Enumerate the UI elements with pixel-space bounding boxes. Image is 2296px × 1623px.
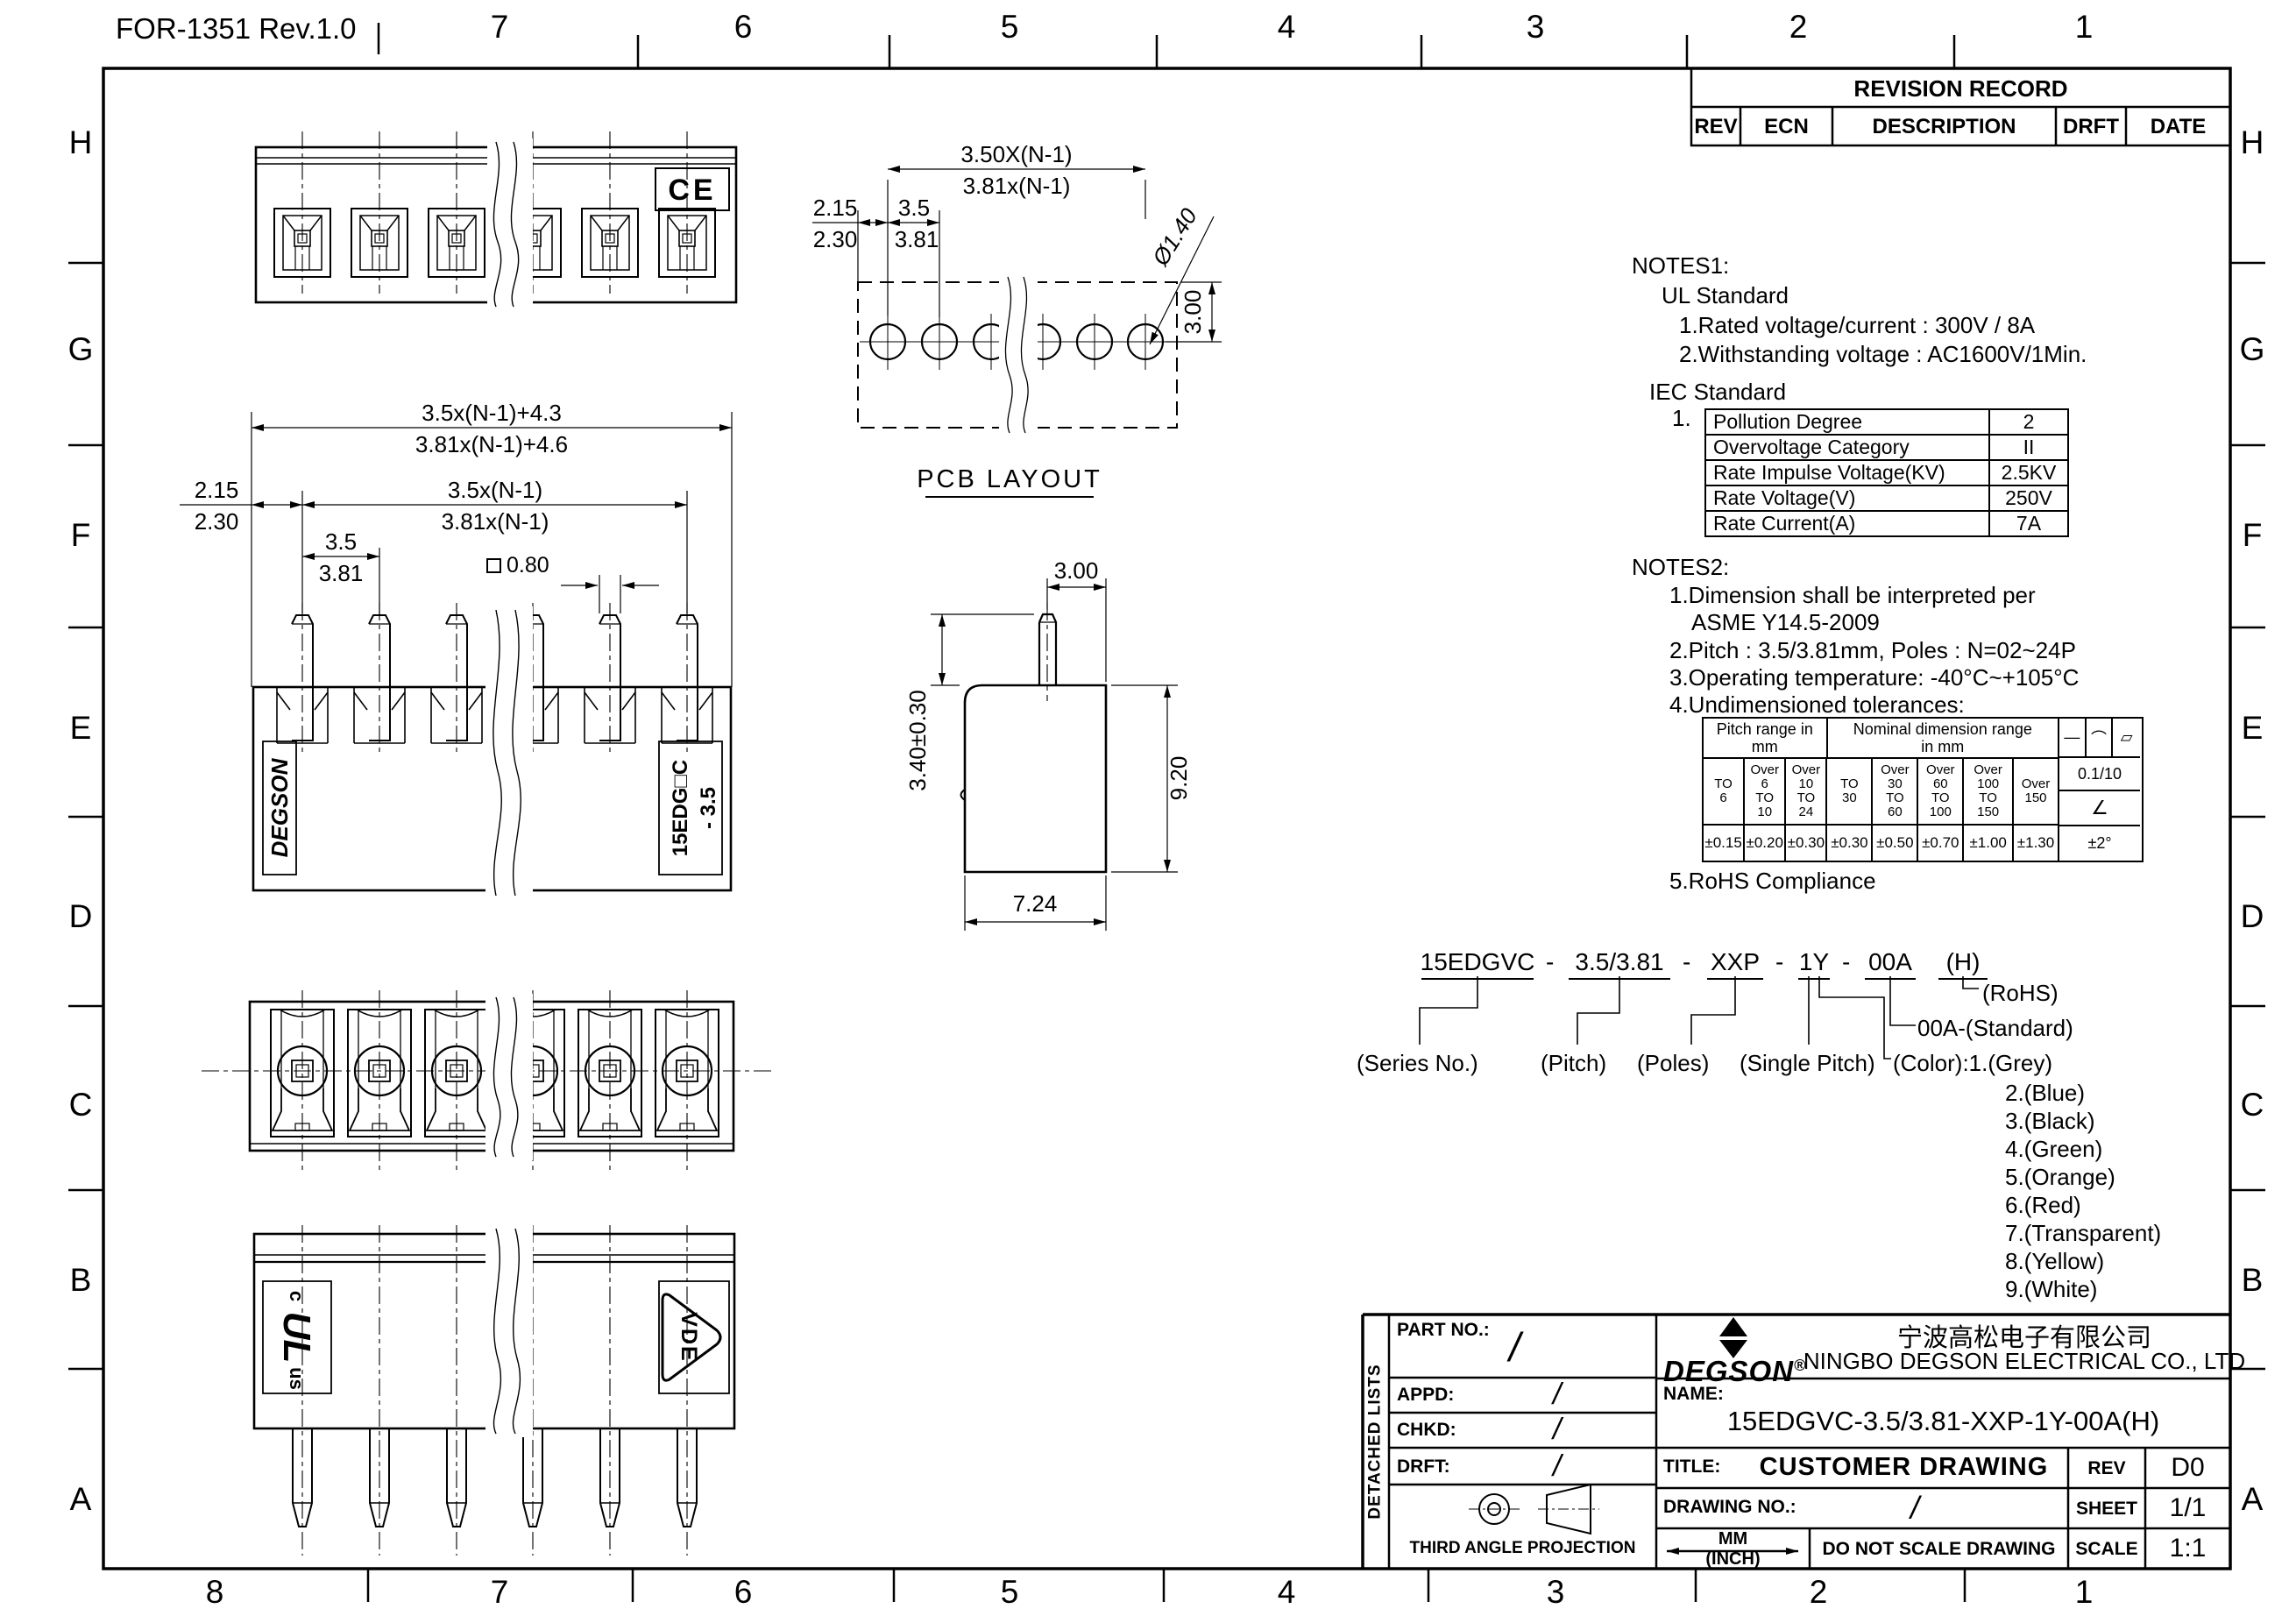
- ordering-dash-3: -: [1775, 948, 1783, 976]
- ordering-color-5: 5.(Orange): [2005, 1164, 2115, 1191]
- dim-side-body-height: 9.20: [1166, 756, 1192, 801]
- dim-pcb-hole-dia: Ø1.40: [1146, 203, 1202, 271]
- grid-row-left-D: D: [63, 898, 98, 935]
- ul-mark-ul: UL: [275, 1312, 318, 1364]
- grid-col-top-1: 1: [2066, 9, 2101, 46]
- grid-row-right-A: A: [2235, 1481, 2270, 1518]
- grid-col-bottom-3: 3: [1538, 1574, 1573, 1611]
- iec-row-label: Rate Current(A): [1705, 511, 1989, 536]
- title-label: TITLE:: [1663, 1456, 1720, 1478]
- chkd-value: /: [1553, 1413, 1561, 1447]
- third-angle-projection-icon: [1469, 1485, 1599, 1534]
- notes1-ul-title: UL Standard: [1662, 282, 1789, 309]
- grid-col-bottom-5: 5: [992, 1574, 1027, 1611]
- dim-side-pin-height: 3.40±0.30: [904, 690, 931, 790]
- notes2-item5: 5.RoHS Compliance: [1669, 868, 1876, 895]
- ordering-label-single-pitch: (Single Pitch): [1740, 1050, 1875, 1077]
- view-front: 0.80 3.5x(N-1)+4.3 3.81x(N-1)+4.6 3.5x(N…: [180, 400, 732, 899]
- grid-row-right-B: B: [2235, 1262, 2270, 1299]
- tol-pitch-value-1: ±0.15: [1704, 826, 1745, 861]
- tol-nominal-range-3: Over 60 TO 100: [1918, 759, 1964, 826]
- dim-pcb-pitch-a: 3.5: [898, 195, 930, 221]
- ce-mark-label: CE: [668, 174, 716, 207]
- iec-row-value: 2.5KV: [1989, 460, 2068, 485]
- notes1-ul-item2: 2.Withstanding voltage : AC1600V/1Min.: [1679, 341, 2087, 368]
- iec-row-value: 2: [1989, 409, 2068, 435]
- tol-nominal-value-2: ±0.50: [1873, 826, 1918, 861]
- notes2-item1: 1.Dimension shall be interpreted per: [1669, 582, 2036, 609]
- dim-pcb-edge-a: 2.15: [813, 195, 858, 221]
- notes2-heading: NOTES2:: [1632, 554, 1729, 581]
- ordering-dash-4: -: [1842, 948, 1850, 976]
- grid-col-bottom-8: 8: [197, 1574, 232, 1611]
- dim-front-pitch-b: 3.81: [319, 560, 364, 586]
- dim-pcb-overall-a: 3.50X(N-1): [960, 141, 1072, 167]
- drawing-no-label: DRAWING NO.:: [1663, 1497, 1796, 1518]
- ordering-color-2: 2.(Blue): [2005, 1080, 2085, 1107]
- grid-row-right-C: C: [2235, 1087, 2270, 1123]
- do-not-scale-label: DO NOT SCALE DRAWING: [1810, 1539, 2068, 1560]
- company-name-en: NINGBO DEGSON ELECTRICAL CO., LTD: [1832, 1348, 2217, 1375]
- rev-value: D0: [2145, 1453, 2230, 1483]
- dim-pcb-row-offset: 3.00: [1180, 290, 1206, 335]
- revision-col-rev: REV: [1691, 112, 1740, 142]
- form-title: FOR-1351 Rev.1.0: [116, 12, 357, 46]
- ul-mark-us: us: [286, 1367, 308, 1390]
- tol-nominal-header: Nominal dimension range in mm: [1828, 719, 2059, 759]
- angle-symbol-icon: ∠: [2059, 791, 2140, 826]
- ce-mark: CE: [655, 168, 729, 210]
- ordering-color-7: 7.(Transparent): [2005, 1220, 2161, 1247]
- molded-brand-label: DEGSON: [266, 757, 293, 857]
- grid-row-right-H: H: [2235, 124, 2270, 161]
- drft-label: DRFT:: [1397, 1456, 1450, 1478]
- tol-nominal-range-2: Over 30 TO 60: [1873, 759, 1918, 826]
- grid-col-top-5: 5: [992, 9, 1027, 46]
- units-mm-label: MM: [1656, 1529, 1810, 1549]
- ordering-poles: XXP: [1707, 948, 1763, 980]
- scale-value: 1:1: [2145, 1534, 2230, 1563]
- arc-symbol-icon: ⌒: [2087, 719, 2114, 758]
- iec-row-label: Rate Impulse Voltage(KV): [1705, 460, 1989, 485]
- dim-front-span-b: 3.81x(N-1): [442, 508, 549, 535]
- ordering-connectors: [1420, 976, 1979, 1059]
- name-value: 15EDGVC-3.5/3.81-XXP-1Y-00A(H): [1656, 1406, 2230, 1437]
- view-bottom: c UL us VDE: [254, 1225, 734, 1556]
- tol-pitch-value-3: ±0.30: [1786, 826, 1827, 861]
- tol-pitch-value-2: ±0.20: [1745, 826, 1786, 861]
- grid-row-right-E: E: [2235, 710, 2270, 747]
- iec-ratings-table: Pollution Degree2 Overvoltage CategoryII…: [1704, 408, 2069, 537]
- ordering-color-9: 9.(White): [2005, 1276, 2097, 1303]
- dim-pcb-pitch-b: 3.81: [895, 226, 939, 252]
- ordering-color-8: 8.(Yellow): [2005, 1248, 2104, 1275]
- ordering-rohs-code: (H): [1938, 948, 1988, 980]
- scale-label: SCALE: [2068, 1539, 2145, 1560]
- appd-label: APPD:: [1397, 1385, 1454, 1406]
- grid-row-right-G: G: [2235, 331, 2270, 368]
- tol-nominal-value-1: ±0.30: [1827, 826, 1873, 861]
- dim-front-span-a: 3.5x(N-1): [448, 477, 542, 503]
- iec-row-value: 7A: [1989, 511, 2068, 536]
- degson-logo-icon: [1719, 1317, 1747, 1358]
- ordering-color-first: (Color):1.(Grey): [1893, 1050, 2052, 1077]
- tol-nominal-value-3: ±0.70: [1918, 826, 1964, 861]
- tol-nominal-range-5: Over 150: [2014, 759, 2059, 826]
- grid-row-left-C: C: [63, 1087, 98, 1123]
- rev-label: REV: [2068, 1458, 2145, 1479]
- grid-col-bottom-6: 6: [726, 1574, 761, 1611]
- degson-logo-word: DEGSON: [1663, 1355, 1794, 1387]
- tol-pitch-range-1: TO 6: [1704, 759, 1745, 826]
- grid-row-left-A: A: [63, 1481, 98, 1518]
- tol-angle-value: ±2°: [2059, 826, 2140, 861]
- ordering-option: 00A: [1865, 948, 1916, 980]
- view-pcb-layout: 3.50X(N-1) 3.81x(N-1) 2.15 2.30 3.5 3.81…: [812, 141, 1222, 497]
- notes2-item1b: ASME Y14.5-2009: [1691, 609, 1880, 636]
- ul-mark-c: c: [286, 1291, 308, 1301]
- grid-col-bottom-7: 7: [482, 1574, 517, 1611]
- dim-front-edge-a: 2.15: [195, 477, 239, 503]
- pcb-layout-label: PCB LAYOUT: [917, 465, 1102, 493]
- grid-col-bottom-2: 2: [1801, 1574, 1836, 1611]
- vde-mark: VDE: [659, 1281, 729, 1393]
- grid-col-bottom-1: 1: [2066, 1574, 2101, 1611]
- units-inch-label: (INCH): [1656, 1549, 1810, 1570]
- notes1-heading: NOTES1:: [1632, 252, 1729, 280]
- detached-lists-strip: DETACHED LISTS: [1363, 1315, 1389, 1569]
- iec-row-value: 250V: [1989, 485, 2068, 511]
- dim-front-pin: 0.80: [507, 553, 549, 578]
- detached-lists-label: DETACHED LISTS: [1366, 1364, 1385, 1519]
- sheet-value: 1/1: [2145, 1493, 2230, 1523]
- grid-row-right-D: D: [2235, 898, 2270, 935]
- grid-col-bottom-4: 4: [1269, 1574, 1304, 1611]
- ordering-single-pitch: 1Y: [1798, 948, 1830, 980]
- molded-part-label-line1: 15EDG□C: [669, 760, 692, 857]
- notes1-iec-title: IEC Standard: [1649, 379, 1786, 406]
- tol-pitch-range-3: Over 10 TO 24: [1786, 759, 1827, 826]
- iec-row-value: II: [1989, 435, 2068, 460]
- grid-row-left-G: G: [63, 331, 98, 368]
- projection-label: THIRD ANGLE PROJECTION: [1389, 1539, 1656, 1558]
- revision-title: REVISION RECORD: [1691, 74, 2230, 103]
- part-no-value: /: [1509, 1323, 1520, 1371]
- grid-col-top-4: 4: [1269, 9, 1304, 46]
- vde-mark-label: VDE: [677, 1312, 701, 1362]
- tol-pitch-header: Pitch range in mm: [1704, 719, 1828, 759]
- molded-part-label-line2: - 3.5: [697, 787, 720, 829]
- ordering-pitch: 3.5/3.81: [1569, 948, 1670, 980]
- straightness-symbol-icon: —: [2059, 719, 2087, 758]
- drawing-no-value: /: [1910, 1490, 1919, 1527]
- notes2-item3: 3.Operating temperature: -40°C~+105°C: [1669, 664, 2079, 691]
- name-label: NAME:: [1663, 1384, 1724, 1405]
- revision-col-description: DESCRIPTION: [1832, 112, 2056, 142]
- dim-pcb-overall-b: 3.81x(N-1): [963, 173, 1071, 199]
- tol-pitch-range-2: Over 6 TO 10: [1745, 759, 1786, 826]
- dim-side-body-width: 7.24: [1013, 890, 1058, 917]
- ordering-dash-2: -: [1683, 948, 1690, 976]
- dim-side-top: 3.00: [1054, 557, 1099, 584]
- ordering-dash-1: -: [1546, 948, 1554, 976]
- ordering-standard-label: 00A-(Standard): [1917, 1015, 2073, 1042]
- tol-nominal-range-4: Over 100 TO 150: [1964, 759, 2014, 826]
- grid-col-top-7: 7: [482, 9, 517, 46]
- view-side: 3.00 3.40±0.30 9.20 7.24: [904, 557, 1192, 931]
- appd-value: /: [1553, 1378, 1561, 1412]
- grid-row-left-H: H: [63, 124, 98, 161]
- grid-col-top-6: 6: [726, 9, 761, 46]
- tol-nominal-value-5: ±1.30: [2014, 826, 2059, 861]
- tol-nominal-range-1: TO 30: [1827, 759, 1873, 826]
- view-top: CE: [256, 131, 736, 310]
- dim-front-len-a: 3.5x(N-1)+4.3: [422, 400, 562, 426]
- tol-nominal-value-4: ±1.00: [1964, 826, 2014, 861]
- square-pin-symbol: [487, 559, 500, 572]
- ordering-label-poles: (Poles): [1637, 1050, 1709, 1077]
- revision-col-drft: DRFT: [2056, 112, 2126, 142]
- title-value: CUSTOMER DRAWING: [1740, 1453, 2068, 1482]
- notes2-item2: 2.Pitch : 3.5/3.81mm, Poles : N=02~24P: [1669, 637, 2076, 664]
- grid-col-top-2: 2: [1781, 9, 1816, 46]
- ordering-color-6: 6.(Red): [2005, 1192, 2081, 1219]
- notes1-ul-item1: 1.Rated voltage/current : 300V / 8A: [1679, 312, 2035, 339]
- grid-col-top-3: 3: [1518, 9, 1553, 46]
- tol-straightness-value: 0.1/10: [2059, 758, 2140, 791]
- dim-front-len-b: 3.81x(N-1)+4.6: [415, 431, 568, 457]
- grid-row-right-F: F: [2235, 517, 2270, 554]
- tolerance-table: Pitch range in mm Nominal dimension rang…: [1702, 717, 2144, 862]
- drawing-sheet: CE: [0, 0, 2296, 1623]
- view-plan: [202, 990, 771, 1174]
- iec-row-label: Overvoltage Category: [1705, 435, 1989, 460]
- sheet-label: SHEET: [2068, 1499, 2145, 1520]
- revision-col-date: DATE: [2126, 112, 2230, 142]
- grid-row-left-F: F: [63, 517, 98, 554]
- ordering-color-4: 4.(Green): [2005, 1136, 2102, 1163]
- drft-value: /: [1553, 1449, 1561, 1484]
- ordering-label-series: (Series No.): [1357, 1050, 1478, 1077]
- ordering-rohs-label: (RoHS): [1982, 980, 2059, 1007]
- iec-row-label: Rate Voltage(V): [1705, 485, 1989, 511]
- ordering-color-3: 3.(Black): [2005, 1108, 2095, 1135]
- dim-pcb-edge-b: 2.30: [813, 226, 858, 252]
- chkd-label: CHKD:: [1397, 1420, 1456, 1441]
- iec-row-label: Pollution Degree: [1705, 409, 1989, 435]
- dim-front-edge-b: 2.30: [195, 508, 239, 535]
- revision-col-ecn: ECN: [1740, 112, 1832, 142]
- ordering-label-pitch: (Pitch): [1541, 1050, 1606, 1077]
- grid-row-left-E: E: [63, 710, 98, 747]
- ul-mark: c UL us: [263, 1281, 331, 1393]
- grid-row-left-B: B: [63, 1262, 98, 1299]
- part-no-label: PART NO.:: [1397, 1320, 1490, 1341]
- notes1-iec-number: 1.: [1672, 405, 1691, 432]
- notes2-item4: 4.Undimensioned tolerances:: [1669, 691, 1965, 719]
- dim-front-pitch-a: 3.5: [325, 528, 357, 555]
- ordering-series: 15EDGVC: [1421, 948, 1534, 980]
- flatness-symbol-icon: ▱: [2113, 719, 2140, 758]
